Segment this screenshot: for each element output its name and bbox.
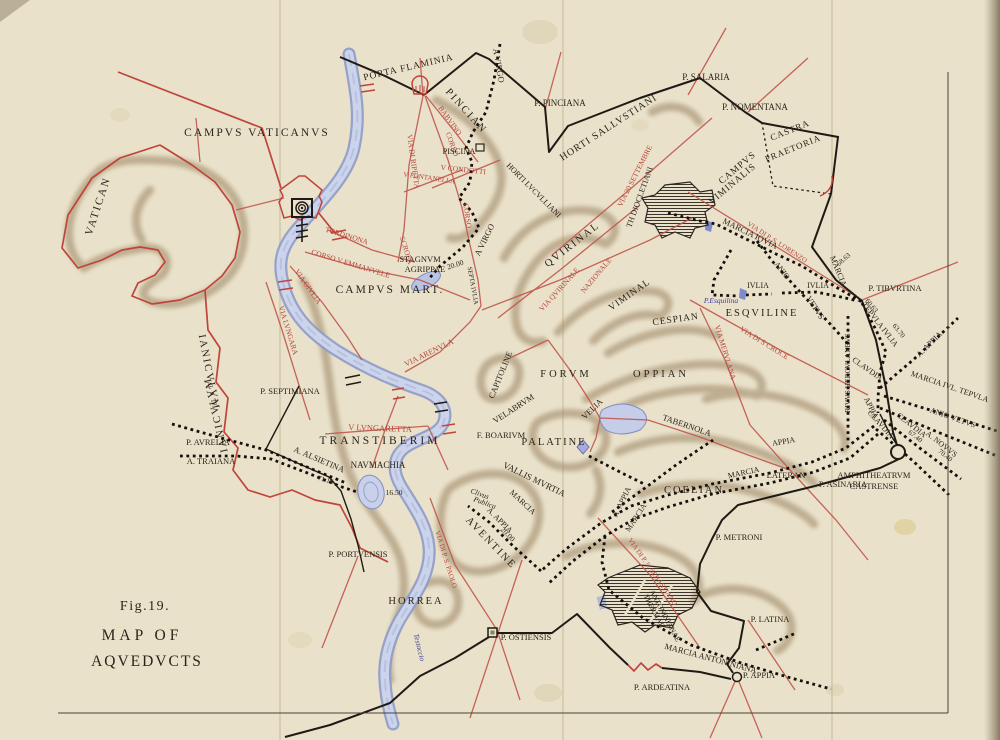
map-label: CAMPVS VATICANVS [184,127,330,139]
map-label: TRANSTIBERIM [320,435,441,447]
map-label: RIVVS HERCVLANEVS [843,333,852,412]
figure-number: Fig.19. [120,599,170,614]
map-label: P. PINCIANA [534,98,586,108]
amphitheatrum-castrense-icon [891,445,905,459]
map-label: F. BOARIVM [477,430,526,440]
map-label: PISCINA [442,146,476,156]
map-label: 16.50 [386,488,403,497]
map-label: P. NOMENTANA [722,102,788,112]
map-label: CAMPVS MART. [336,284,445,296]
map-label: P. ARDEATINA [634,682,691,692]
scanned-book-page: Fig.19. MAP OF AQVEDVCTS CAMPVS VATICANV… [0,0,1000,740]
map-label: ESQVILINE [726,308,799,319]
map-label: LATERAN [767,470,806,480]
figure-title-line1: MAP OF [102,627,183,644]
map-label: OPPIAN [633,369,689,380]
map-label: P.Esquilina [703,296,738,305]
map-label: P. TIBVRTINA [868,283,922,293]
figure-title-line2: AQVEDVCTS [91,653,203,670]
map-label: A. TRAIANA [187,456,236,466]
map-label: P. SALARIA [682,72,730,82]
map-label: FORVM [540,369,592,380]
map-label: NAVMACHIA [351,460,406,470]
map-label: P. METRONI [716,532,763,542]
map-label: PALATINE [521,437,586,448]
aqueduct-map: Fig.19. MAP OF AQVEDVCTS CAMPVS VATICANV… [0,0,1000,740]
map-label: P. SEPTIMIANA [260,386,320,396]
map-label: AGRIPPAE [405,264,446,274]
map-label: P. PORTVENSIS [328,549,387,559]
map-label: P. OSTIENSIS [501,632,552,642]
map-label: P. LATINA [751,614,791,624]
page-edge-shadow [984,0,1000,740]
porta-appia-gate [733,673,742,682]
map-label: IVLIA [747,281,769,290]
map-label: P. AVRELIA [186,437,231,447]
map-label: COELIAN [664,485,724,496]
map-label: STAGNVM [399,254,441,264]
map-label: CASTRENSE [850,481,899,491]
map-label: HORREA [388,596,443,607]
map-label: P. APPIA [743,670,776,680]
map-label: IVLIA [807,281,829,290]
map-label: AMPHITHEATRVM [838,470,911,480]
